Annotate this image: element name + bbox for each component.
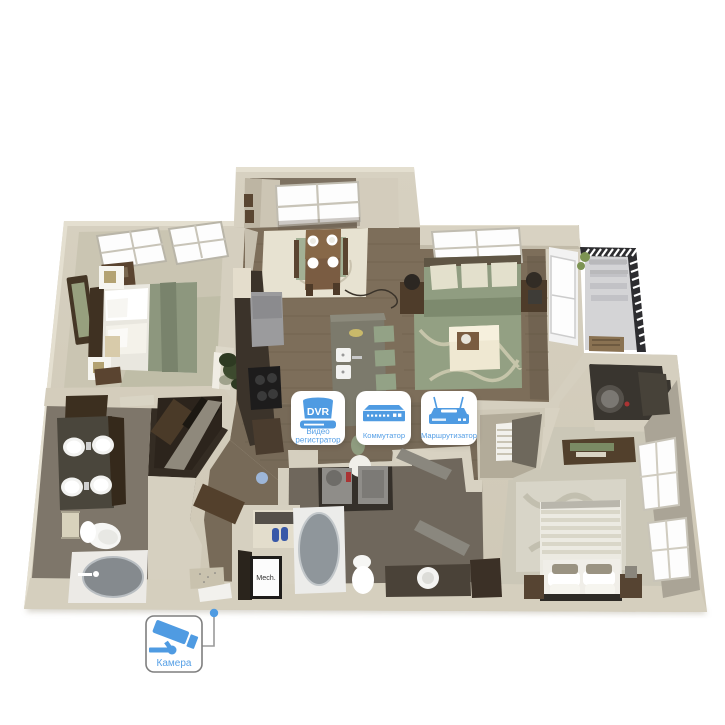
svg-text:DVR: DVR: [307, 406, 330, 418]
svg-text:Mech.: Mech.: [256, 573, 276, 582]
svg-text:Маршрутизатор: Маршрутизатор: [421, 431, 477, 440]
svg-text:Камера: Камера: [157, 658, 192, 669]
svg-text:регистратор: регистратор: [295, 436, 341, 445]
svg-text:Коммутатор: Коммутатор: [363, 431, 405, 440]
